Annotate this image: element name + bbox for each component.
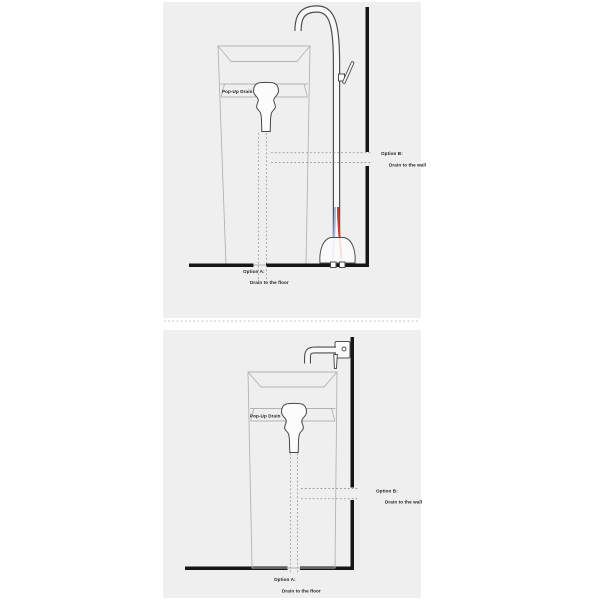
floor-line-left xyxy=(189,264,254,268)
wall-line-lower xyxy=(366,166,370,267)
panel-freestanding-faucet: Pop-Up Drain Option B: Drain to the wall… xyxy=(163,2,426,318)
panel-background xyxy=(163,2,421,318)
panel-wall-mounted-faucet: Pop-Up Drain Option B: Drain to the wall… xyxy=(163,330,422,598)
popup-drain-label: Pop-Up Drain xyxy=(222,89,253,94)
installation-diagram: Pop-Up Drain Option B: Drain to the wall… xyxy=(0,0,600,600)
faucet-handle-lever xyxy=(334,355,338,369)
option-b-title: Option B: xyxy=(381,151,403,156)
wall-line-upper xyxy=(366,7,370,152)
option-a-desc: Drain to the floor xyxy=(250,280,289,285)
wall-line-lower xyxy=(351,500,355,570)
floor-line-right xyxy=(266,264,369,268)
popup-drain-label: Pop-Up Drain xyxy=(250,414,281,419)
option-a-title: Option A: xyxy=(243,269,265,274)
option-a-title: Option A: xyxy=(274,577,296,582)
option-b-title: Option B: xyxy=(376,489,398,494)
installation-diagram-page: Pop-Up Drain Option B: Drain to the wall… xyxy=(0,0,600,600)
option-b-desc: Drain to the wall xyxy=(385,500,422,505)
wall-line-upper xyxy=(351,337,355,488)
option-a-desc: Drain to the floor xyxy=(282,589,321,594)
faucet-base xyxy=(320,238,355,264)
faucet-foot-left xyxy=(331,262,337,268)
panel-background xyxy=(163,330,421,598)
faucet-wall-plate-screw xyxy=(342,347,346,351)
option-b-desc: Drain to the wall xyxy=(389,163,426,168)
faucet-foot-right xyxy=(340,262,346,268)
